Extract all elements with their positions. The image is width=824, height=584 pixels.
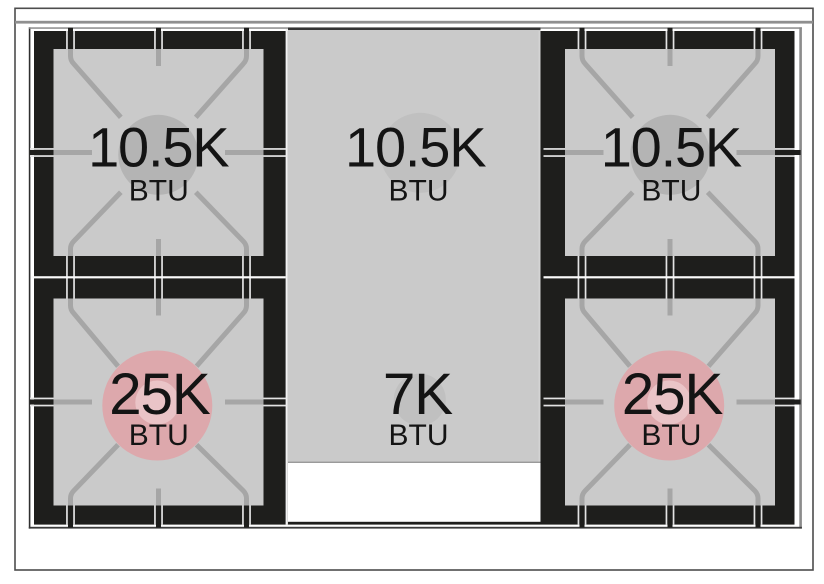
svg-text:BTU: BTU xyxy=(129,419,189,452)
svg-text:10.5K: 10.5K xyxy=(88,116,229,179)
svg-text:10.5K: 10.5K xyxy=(345,116,486,179)
svg-text:25K: 25K xyxy=(622,362,724,427)
svg-text:25K: 25K xyxy=(109,362,211,427)
svg-text:BTU: BTU xyxy=(641,419,701,452)
svg-text:BTU: BTU xyxy=(641,174,701,207)
svg-text:BTU: BTU xyxy=(389,419,449,452)
svg-text:7K: 7K xyxy=(383,362,453,427)
svg-text:10.5K: 10.5K xyxy=(601,116,742,179)
svg-text:BTU: BTU xyxy=(389,174,449,207)
svg-text:BTU: BTU xyxy=(129,174,189,207)
